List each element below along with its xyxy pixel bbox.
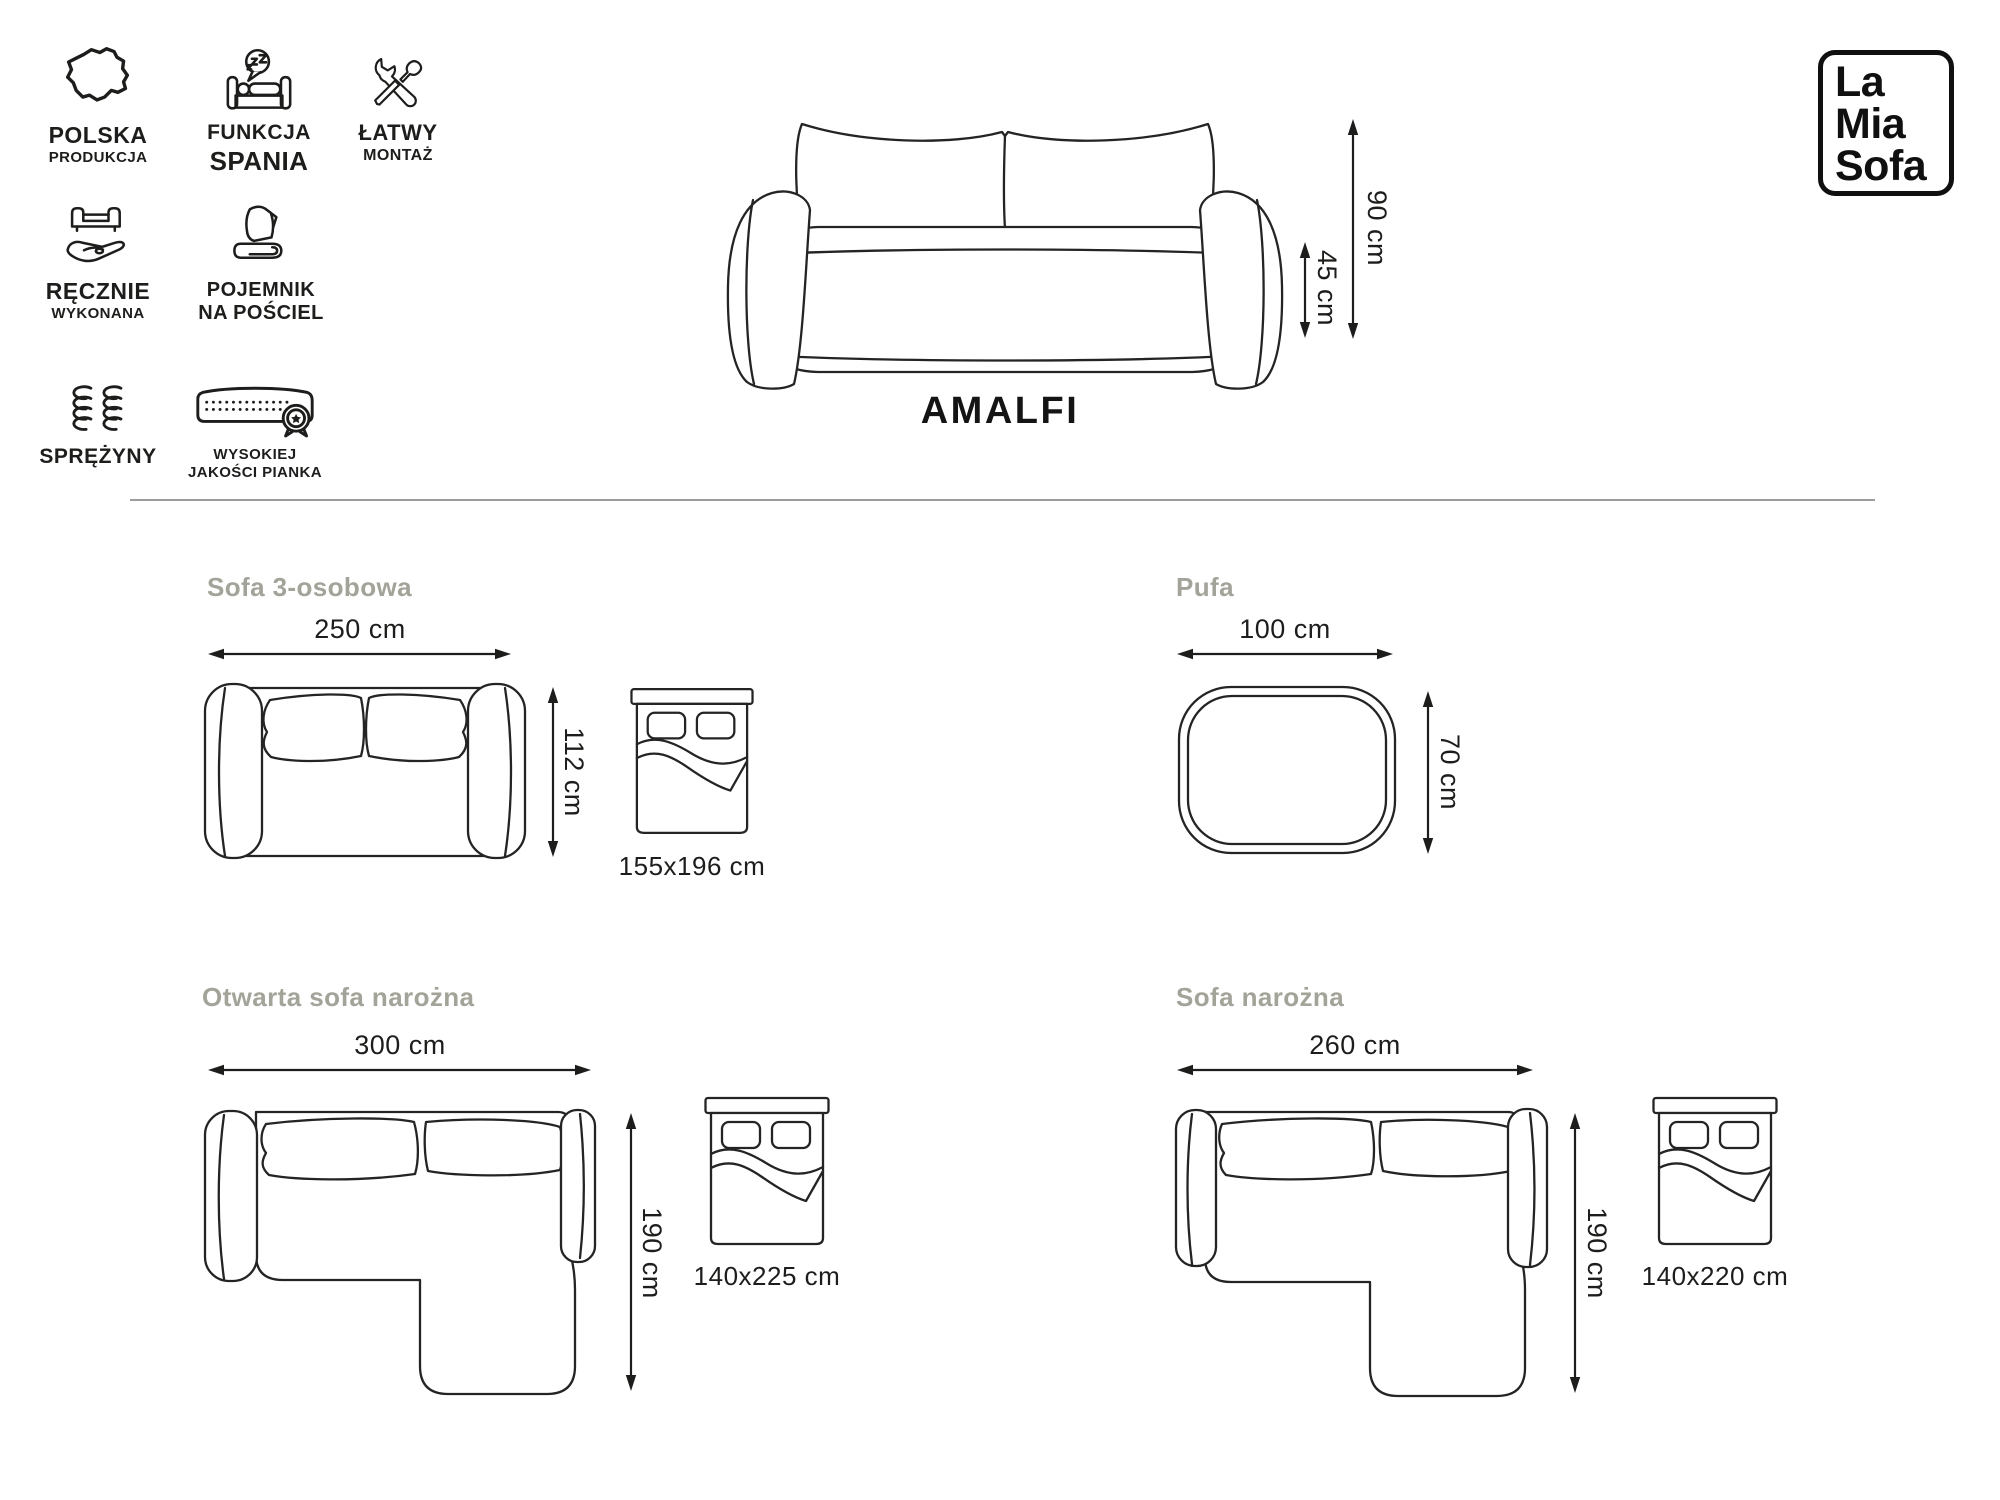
bedding-storage-icon <box>186 198 336 272</box>
main-sofa-front-drawing <box>722 94 1288 394</box>
seat-height-arrow <box>1298 241 1312 339</box>
feature-sprezyny: SPRĘŻYNY <box>28 376 168 469</box>
poland-map-icon <box>28 38 168 116</box>
seat-height-label: 45 cm <box>1312 243 1342 333</box>
feature-sublabel: WYKONANA <box>28 305 168 324</box>
feature-label: WYSOKIEJ <box>166 447 344 464</box>
corner-bed-size-label: 140x220 cm <box>1615 1260 1815 1292</box>
feature-sublabel: JAKOŚCI PIANKA <box>166 464 344 483</box>
feature-sublabel: MONTAŻ <box>342 146 454 166</box>
pufa-width-arrow <box>1176 647 1394 661</box>
section-title-pufa: Pufa <box>1176 572 1234 603</box>
feature-wysokiej-jakosci-pianka: WYSOKIEJ JAKOŚCI PIANKA <box>166 382 344 483</box>
brand-logo-line: La <box>1835 61 1949 103</box>
corner-bed-icon <box>1652 1092 1778 1250</box>
feature-recznie-wykonana: RĘCZNIE WYKONANA <box>28 200 168 324</box>
feature-label: POJEMNIK <box>186 279 336 301</box>
open-corner-bed-icon <box>704 1092 830 1250</box>
open-corner-width-label: 300 cm <box>300 1029 500 1061</box>
springs-icon <box>28 376 168 438</box>
feature-latwy-montaz: ŁATWY MONTAŻ <box>342 44 454 166</box>
open-corner-bed-size-label: 140x225 cm <box>667 1260 867 1292</box>
sofa3-depth-label: 112 cm <box>559 727 589 817</box>
page: POLSKA PRODUKCJA FUNKCJA SPANIA <box>0 0 2000 1500</box>
feature-polska-produkcja: POLSKA PRODUKCJA <box>28 38 168 168</box>
handmade-icon <box>28 200 168 272</box>
corner-width-arrow <box>1176 1063 1534 1077</box>
feature-label: POLSKA <box>28 123 168 149</box>
corner-depth-arrow <box>1568 1112 1582 1394</box>
pufa-depth-arrow <box>1421 690 1435 855</box>
feature-label: RĘCZNIE <box>28 279 168 305</box>
brand-logo: La Mia Sofa <box>1818 50 1954 196</box>
open-corner-width-arrow <box>207 1063 592 1077</box>
total-height-label: 90 cm <box>1362 183 1392 273</box>
corner-depth-label: 190 cm <box>1582 1208 1612 1298</box>
feature-funkcja-spania: FUNKCJA SPANIA <box>186 44 332 177</box>
feature-label: FUNKCJA <box>186 121 332 145</box>
feature-sublabel: NA POŚCIEL <box>186 301 336 326</box>
feature-sublabel: SPANIA <box>186 145 332 178</box>
pufa-width-label: 100 cm <box>1185 613 1385 645</box>
corner-width-label: 260 cm <box>1255 1029 1455 1061</box>
section-title-sofa-narozna: Sofa narożna <box>1176 982 1344 1013</box>
quality-foam-icon <box>166 382 344 440</box>
feature-sublabel: PRODUKCJA <box>28 149 168 168</box>
pufa-depth-label: 70 cm <box>1435 727 1465 817</box>
total-height-arrow <box>1346 118 1360 340</box>
divider-line <box>130 499 1875 501</box>
sofa3-width-label: 250 cm <box>260 613 460 645</box>
product-name: AMALFI <box>850 390 1150 433</box>
sofa3-top-view-drawing <box>200 680 530 860</box>
easy-assembly-icon <box>342 44 454 114</box>
open-corner-depth-label: 190 cm <box>637 1208 667 1298</box>
sofa3-bed-size-label: 155x196 cm <box>592 850 792 882</box>
brand-logo-line: Sofa <box>1835 145 1949 187</box>
feature-pojemnik-na-posciel: POJEMNIK NA POŚCIEL <box>186 198 336 326</box>
pufa-top-view-drawing <box>1176 684 1398 856</box>
section-title-sofa-3-osobowa: Sofa 3-osobowa <box>207 572 412 603</box>
feature-label: SPRĘŻYNY <box>28 445 168 469</box>
open-corner-sofa-top-view-drawing <box>198 1106 600 1398</box>
brand-logo-line: Mia <box>1835 103 1949 145</box>
feature-label: ŁATWY <box>342 121 454 146</box>
sofa3-width-arrow <box>207 647 512 661</box>
sleep-function-icon <box>186 44 332 114</box>
section-title-otwarta-sofa-narozna: Otwarta sofa narożna <box>202 982 474 1013</box>
corner-sofa-top-view-drawing <box>1172 1106 1552 1402</box>
sofa3-bed-icon <box>630 682 754 840</box>
